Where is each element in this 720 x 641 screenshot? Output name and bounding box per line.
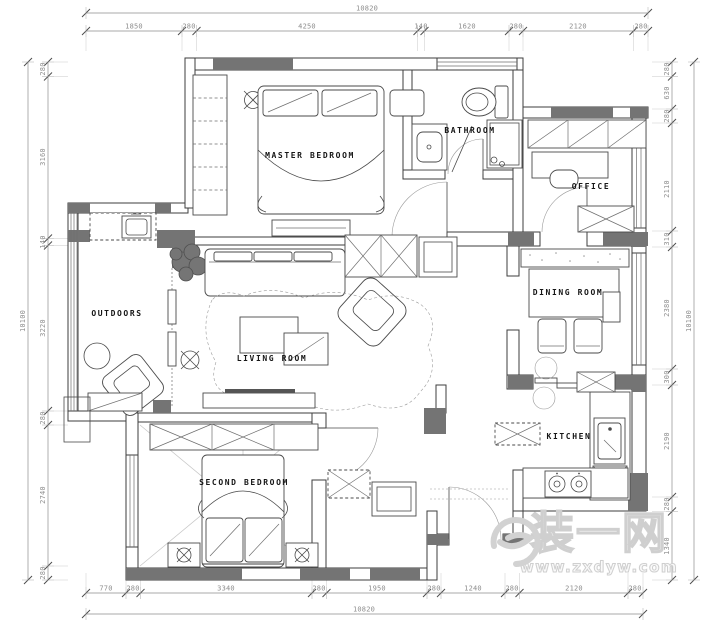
dim-right-0: 280 — [663, 62, 671, 75]
dim-bottom-8: 2120 — [565, 585, 583, 593]
label-kitchen: KITCHEN — [547, 432, 592, 441]
dim-left-1: 3160 — [39, 148, 47, 166]
dim-bottom-9: 280 — [628, 585, 641, 593]
dim-left-total: 10100 — [19, 310, 27, 332]
bed-bench — [272, 220, 350, 236]
dim-bottom-4: 1950 — [368, 585, 386, 593]
nightstand-left — [168, 543, 200, 567]
dim-top-0: 1850 — [125, 23, 143, 31]
sliding-divider — [168, 268, 176, 408]
dim-left-4: 280 — [39, 411, 47, 424]
dim-right-4: 310 — [663, 232, 671, 245]
dim-right-total: 10100 — [685, 310, 693, 332]
living-room-furniture — [170, 235, 457, 410]
label-bathroom: BATHROOM — [444, 126, 495, 135]
dim-bottom-0: 770 — [99, 585, 112, 593]
label-living-room: LIVING ROOM — [237, 354, 308, 363]
wardrobe — [193, 75, 227, 215]
dining-room-furniture — [521, 249, 629, 353]
dim-left-5: 2740 — [39, 486, 47, 504]
dim-top-2: 4250 — [298, 23, 316, 31]
stool — [533, 387, 555, 409]
tv-cabinet — [203, 389, 315, 408]
label-second-bedroom: SECOND BEDROOM — [199, 478, 289, 487]
bathroom-window — [437, 58, 517, 70]
sofa — [205, 249, 345, 296]
dim-top-6: 2120 — [569, 23, 587, 31]
dim-top-7: 280 — [634, 23, 647, 31]
office-furniture — [528, 120, 646, 232]
dim-top-4: 1620 — [458, 23, 476, 31]
dim-bottom-total: 10820 — [353, 606, 375, 614]
label-master-bedroom: MASTER BEDROOM — [265, 151, 355, 160]
dim-top-3: 140 — [414, 23, 427, 31]
dim-right-3: 2110 — [663, 180, 671, 198]
dim-bottom-5: 280 — [427, 585, 440, 593]
dim-right-1: 630 — [663, 86, 671, 99]
dim-top-5: 280 — [509, 23, 522, 31]
dim-top-total: 10820 — [356, 5, 378, 13]
cabinet — [603, 292, 620, 322]
sideboard — [521, 249, 629, 267]
round-table — [84, 343, 110, 369]
toilet — [462, 86, 508, 118]
label-outdoors: OUTDOORS — [91, 309, 142, 318]
floor-plan-image: MASTER BEDROOM BATHROOM OFFICE OUTDOORS … — [0, 0, 720, 641]
dim-bottom-2: 3340 — [217, 585, 235, 593]
dim-top-1: 280 — [182, 23, 195, 31]
label-dining-room: DINING ROOM — [533, 288, 604, 297]
dining-chairs — [538, 319, 602, 353]
entry-door — [449, 487, 501, 539]
floor-plan-svg: MASTER BEDROOM BATHROOM OFFICE OUTDOORS … — [0, 0, 720, 641]
floor-light-icon — [181, 351, 199, 369]
shoe-cabinet — [495, 423, 540, 445]
daybed — [578, 206, 634, 232]
dim-right-5: 2380 — [663, 299, 671, 317]
dim-right-8: 280 — [663, 497, 671, 510]
foyer-cabinets — [328, 470, 416, 516]
bedroom-wardrobe — [150, 424, 318, 450]
bench — [88, 393, 142, 411]
stool — [535, 357, 557, 379]
dim-left-3: 3220 — [39, 319, 47, 337]
label-office: OFFICE — [572, 182, 611, 191]
office-wardrobe — [528, 120, 646, 148]
master-bedroom-door — [392, 182, 447, 237]
second-bed — [198, 455, 287, 567]
dim-left-6: 280 — [39, 566, 47, 579]
fridge — [577, 372, 615, 392]
dining-window — [632, 253, 646, 365]
second-bedroom-window — [126, 455, 138, 547]
dim-bottom-6: 1240 — [464, 585, 482, 593]
laundry-counter — [90, 213, 156, 240]
dim-left-0: 280 — [39, 62, 47, 75]
nightstand — [390, 90, 424, 116]
dim-bottom-7: 280 — [505, 585, 518, 593]
vanity-sink — [412, 124, 447, 170]
dim-left-2: 140 — [39, 235, 47, 248]
dim-right-9: 1340 — [663, 537, 671, 555]
dim-right-6: 300 — [663, 370, 671, 383]
dim-bottom-1: 280 — [126, 585, 139, 593]
double-bed — [258, 86, 384, 214]
dim-right-7: 2190 — [663, 432, 671, 450]
stove-counter — [523, 468, 628, 498]
hall-storage — [345, 235, 457, 277]
dim-right-2: 280 — [663, 109, 671, 122]
plant — [170, 244, 207, 281]
kitchen-sliding-door — [535, 378, 579, 388]
nightstand-right — [286, 543, 318, 567]
dim-bottom-3: 280 — [312, 585, 325, 593]
